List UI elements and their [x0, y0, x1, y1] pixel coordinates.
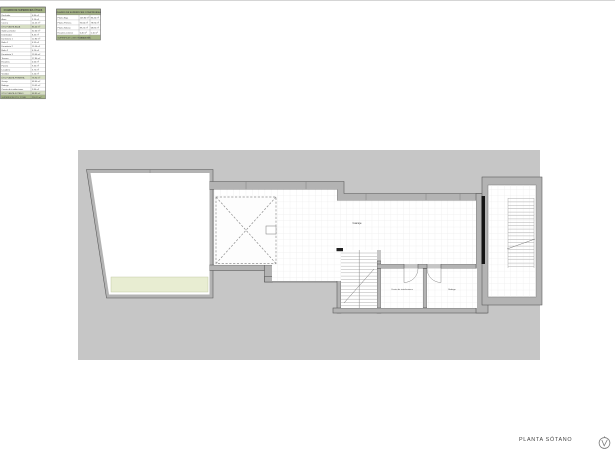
row-value-built: 6.40 m² — [80, 31, 87, 34]
car-lift-handle — [266, 226, 276, 234]
row-label: Baño 1 — [2, 41, 9, 44]
row-label: SUPERFICIE ÚTIL TOTAL — [2, 96, 27, 99]
row-label: Lavadero — [2, 69, 12, 72]
row-value: 8.45 m² — [32, 33, 39, 36]
row-label: Dormitorio 1 — [2, 37, 14, 40]
row-value: 4.60 m² — [32, 61, 39, 64]
row-label: Salón-comedor — [2, 30, 16, 33]
row-value-useful: 86.40 m² — [91, 16, 100, 19]
ramp-green-strip — [111, 277, 208, 292]
row-value: 48.60 m² — [32, 80, 41, 83]
row-value-useful: 5.10 m² — [91, 31, 98, 34]
cellar-label: Bodega — [448, 289, 456, 291]
rooms-divider-wall — [423, 269, 427, 309]
row-value-built: 295.05 m² — [80, 36, 90, 39]
row-label: Distribuidor — [2, 33, 13, 36]
row-value: 11.60 m² — [32, 45, 40, 48]
row-value: 4.20 m² — [32, 49, 39, 52]
row-label: Planta Baja — [58, 16, 69, 19]
row-value: 78.90 m² — [32, 76, 41, 79]
row-value: 4.95 m² — [32, 41, 39, 44]
built-areas-table: CUADRO DE SUPERFICIES CONSTRUIDASPlanta … — [56, 9, 102, 40]
stair-door-mark — [337, 248, 344, 251]
row-label: Dormitorio 2 — [2, 45, 14, 48]
row-label: ÚTIL PLANTA PRIMERA — [2, 76, 25, 79]
plan-title: PLANTA SÓTANO — [519, 436, 572, 443]
table-title: CUADRO DE SUPERFICIES CONSTRUIDAS — [56, 11, 102, 14]
row-label: Terraza — [2, 57, 10, 60]
row-value: 10.45 m² — [32, 84, 41, 87]
row-value-built: 103.80 m² — [80, 16, 90, 19]
rooms-top-wall-b — [418, 264, 427, 269]
row-label: Dormitorio 3 — [2, 53, 14, 56]
row-value: 3.10 m² — [32, 18, 39, 21]
row-label: Planta Primera — [58, 21, 73, 24]
useful-areas-table: CUADRO DE SUPERFICIES ÚTILESRecibidor6.8… — [1, 7, 46, 99]
row-label: Escalera — [2, 61, 11, 64]
row-value-useful: 78.90 m² — [91, 21, 100, 24]
row-value-useful: 68.85 m² — [91, 26, 100, 29]
rooms-top-wall-a — [377, 264, 404, 269]
row-value: 6.80 m² — [32, 14, 39, 17]
row-value: 68.85 m² — [32, 92, 41, 95]
east-wall-joint — [482, 196, 486, 264]
row-label: Escalera exterior — [58, 31, 74, 34]
row-value: 32.60 m² — [32, 30, 41, 33]
row-value: 13.40 m² — [32, 53, 41, 56]
row-value: 234.15 m² — [32, 96, 42, 99]
row-label: ÚTIL PLANTA BAJA — [2, 26, 21, 29]
row-value: 5.20 m² — [32, 72, 39, 75]
row-value: 86.40 m² — [32, 26, 41, 29]
row-value: 12.80 m² — [32, 37, 41, 40]
row-label: Vestidor — [2, 72, 10, 75]
utility-room-label: Cuarto de instalaciones — [391, 288, 413, 291]
studio-logo-icon — [599, 436, 610, 448]
stair-right-wall — [377, 261, 381, 313]
garage-label: Garaje — [352, 221, 361, 225]
row-label: ÚTIL PLANTA SÓTANO — [2, 92, 24, 95]
row-label: Garaje — [2, 80, 9, 83]
plan-sheet-svg: Garaje Cuarto de instalaciones Bodega CU… — [0, 0, 615, 454]
row-value: 9.80 m² — [32, 88, 39, 91]
bottom-wall — [333, 308, 487, 313]
row-label: Porche — [2, 65, 9, 68]
row-label: Baño 2 — [2, 49, 9, 52]
row-value: 17.80 m² — [32, 57, 41, 60]
drawing-canvas: Garaje Cuarto de instalaciones Bodega CU… — [0, 0, 615, 454]
row-label: Planta Sótano — [58, 26, 72, 29]
row-value-built: 95.60 m² — [80, 21, 89, 24]
row-label: Aseo — [2, 18, 8, 21]
row-label: Cocina — [2, 23, 9, 25]
lift-bottom-wall — [210, 265, 270, 271]
row-label: Cuarto de instalaciones — [2, 88, 24, 91]
row-value: 14.25 m² — [32, 22, 41, 25]
row-value: 3.75 m² — [32, 69, 39, 72]
exterior-stair — [508, 199, 534, 267]
rooms-top-wall-c — [441, 264, 477, 269]
row-label: Bodega — [2, 85, 10, 87]
row-label: Recibidor — [2, 14, 11, 17]
ramp-room-floor — [91, 173, 210, 295]
table-title: CUADRO DE SUPERFICIES ÚTILES — [4, 9, 43, 12]
row-value: 9.35 m² — [32, 65, 39, 68]
row-value-built: 89.25 m² — [80, 26, 89, 29]
